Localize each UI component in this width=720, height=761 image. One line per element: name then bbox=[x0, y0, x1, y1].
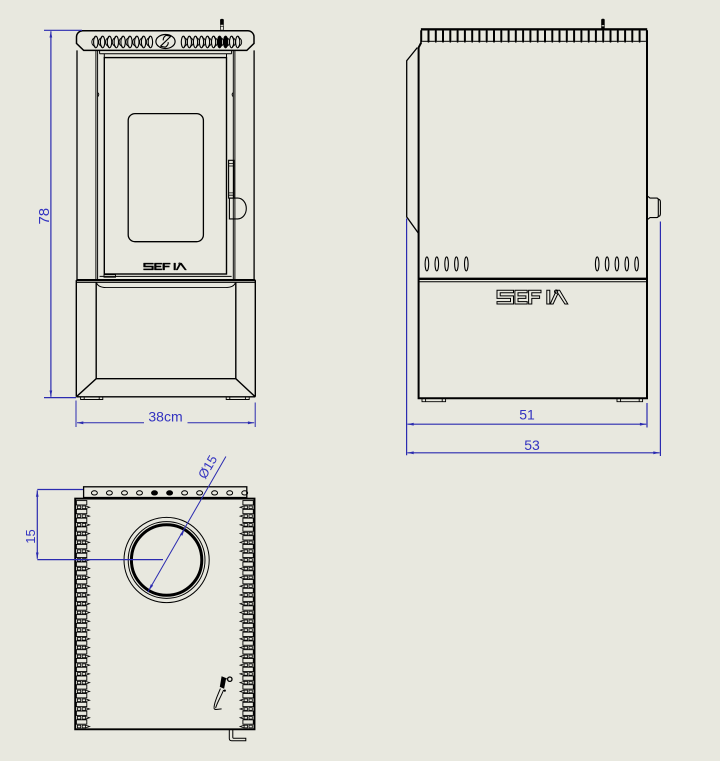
svg-text:Ø15: Ø15 bbox=[195, 453, 220, 482]
svg-text:51: 51 bbox=[519, 406, 535, 422]
svg-text:78: 78 bbox=[36, 208, 53, 225]
svg-text:53: 53 bbox=[524, 437, 540, 453]
svg-text:15: 15 bbox=[23, 529, 38, 543]
svg-text:38cm: 38cm bbox=[148, 409, 182, 425]
